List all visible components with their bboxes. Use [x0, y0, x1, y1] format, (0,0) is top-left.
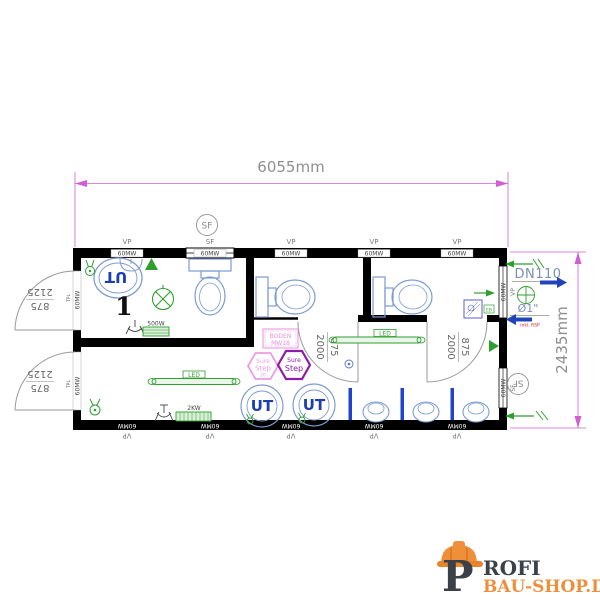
door-type-label: TPL — [66, 380, 72, 389]
floor-plan-page: 6055mm 2435mm SF — [0, 0, 600, 600]
interior-door-b-dims: 875 2000 — [445, 332, 470, 362]
window-label-vp: VP — [369, 238, 378, 246]
window-label-vp: VP — [286, 432, 295, 440]
door1-height: 2125 — [27, 286, 52, 297]
window-size-label: 60MW — [365, 251, 384, 258]
window-size-label: 60MW — [201, 422, 220, 429]
logo-initial: P — [442, 552, 474, 600]
window-size-label: 60MW — [118, 422, 137, 429]
stall2-toilet — [373, 277, 432, 317]
sure-label: Sure — [287, 357, 301, 364]
window-size-label: 60MW — [282, 251, 301, 258]
led-label: LED — [188, 372, 200, 379]
sf-symbol-top-text: SF — [202, 222, 213, 232]
window-size-label: 60MW — [448, 251, 467, 258]
window-size-label: 60MW — [365, 422, 384, 429]
door-size-label: 60MW — [75, 377, 82, 396]
profi-bau-shop-logo[interactable]: P ROFI BAU-SHOP.DE — [437, 541, 600, 600]
fan-symbol — [153, 285, 174, 310]
floor-drain — [345, 360, 353, 368]
vent-triangle — [145, 258, 158, 270]
vent-arrow-boiler — [474, 290, 495, 297]
window-label-vp: VP — [369, 432, 378, 440]
room1-sink — [126, 320, 144, 334]
corridor-sink — [155, 405, 173, 421]
sure-step-badge-pink: Sure Step 20 — [248, 353, 278, 379]
floor-spec-box: BODEN MW18 — [263, 329, 298, 348]
room-number: 1 — [115, 292, 132, 321]
vent-arrow-bottom-right — [505, 411, 548, 420]
window-label-vp: VP — [122, 432, 131, 440]
urinals — [363, 402, 489, 422]
interior-door-a — [298, 322, 358, 382]
sf-symbol-right: SF — [508, 374, 529, 395]
stall1-toilet — [256, 277, 315, 317]
window-size-label: 60MW — [448, 422, 467, 429]
floor-plan-drawing: 6055mm 2435mm SF — [0, 0, 600, 600]
exterior-door-1-dims: 875 2125 — [26, 286, 54, 311]
door-size-label: 60MW — [75, 291, 82, 310]
window-size-label: 60MW — [282, 422, 301, 429]
width-dimension — [75, 172, 508, 247]
water-note: inkl. RSP — [520, 323, 540, 329]
step-label: Step — [255, 365, 271, 373]
window-size-label: 60MW — [501, 283, 508, 302]
door-type-label: TPL — [66, 294, 72, 303]
ceiling-light-symbol — [86, 260, 95, 276]
water-pipe-label: Ø1" — [518, 302, 539, 315]
sf-symbol-right-text: SF — [513, 378, 524, 388]
interior-door-a-dims: 875 2000 — [314, 332, 339, 362]
room1-toilet — [189, 259, 231, 315]
doorB-height: 2000 — [445, 334, 456, 359]
window-label-vp: VP — [122, 238, 131, 246]
window-size-label: 60MW — [501, 379, 508, 398]
doorA-height: 2000 — [314, 334, 325, 359]
ceiling-light-symbol-2 — [90, 399, 100, 415]
door1-width: 875 — [30, 300, 49, 311]
led-light-1: LED — [329, 330, 425, 344]
logo-domain: BAU-SHOP.DE — [483, 577, 600, 597]
drain-pipe-label: DN110 — [514, 267, 561, 282]
floor-spec-line1: BODEN — [270, 333, 292, 340]
doorB-width: 875 — [459, 337, 470, 356]
window-label-vp: VP — [510, 288, 517, 296]
window-size-label: 60MW — [201, 251, 220, 258]
sure-step-badge-purple: Sure Step — [278, 351, 310, 379]
exterior-door-2-dims: 875 2125 — [26, 368, 54, 393]
exterior-door-2 — [15, 352, 75, 410]
step-label: Step — [285, 364, 303, 373]
ut-label: UT — [104, 268, 127, 286]
window-label-sf: SF — [206, 238, 214, 246]
heater-2kw-label: 2KW — [187, 405, 201, 412]
window-size-label: 60MW — [118, 251, 137, 258]
heater-500w: 500W — [143, 321, 169, 337]
interior-door-b — [427, 322, 487, 382]
ut-label: UT — [251, 397, 274, 415]
led-light-2: LED — [148, 371, 240, 385]
led-label: LED — [379, 331, 391, 338]
window-label-vp: VP — [452, 238, 461, 246]
door2-height: 2125 — [27, 368, 52, 379]
window-label-vp: VP — [286, 238, 295, 246]
width-dimension-text: 6055mm — [257, 158, 324, 176]
boiler-tag: EB — [486, 308, 492, 314]
heater-2kw: 2KW — [176, 405, 211, 421]
vent-triangle-right-wall — [489, 340, 499, 352]
ut-label: UT — [303, 396, 326, 414]
window-label-vp: VP — [452, 432, 461, 440]
floor-spec-line2: MW18 — [271, 340, 290, 347]
step-num-label: 20 — [260, 373, 266, 379]
heater-500w-label: 500W — [147, 321, 164, 328]
height-dimension-text: 2435mm — [553, 306, 571, 373]
pipe-symbol — [518, 287, 535, 304]
sf-symbol-top: SF — [197, 215, 218, 236]
window-label-vp: VP — [205, 432, 214, 440]
door2-width: 875 — [30, 382, 49, 393]
